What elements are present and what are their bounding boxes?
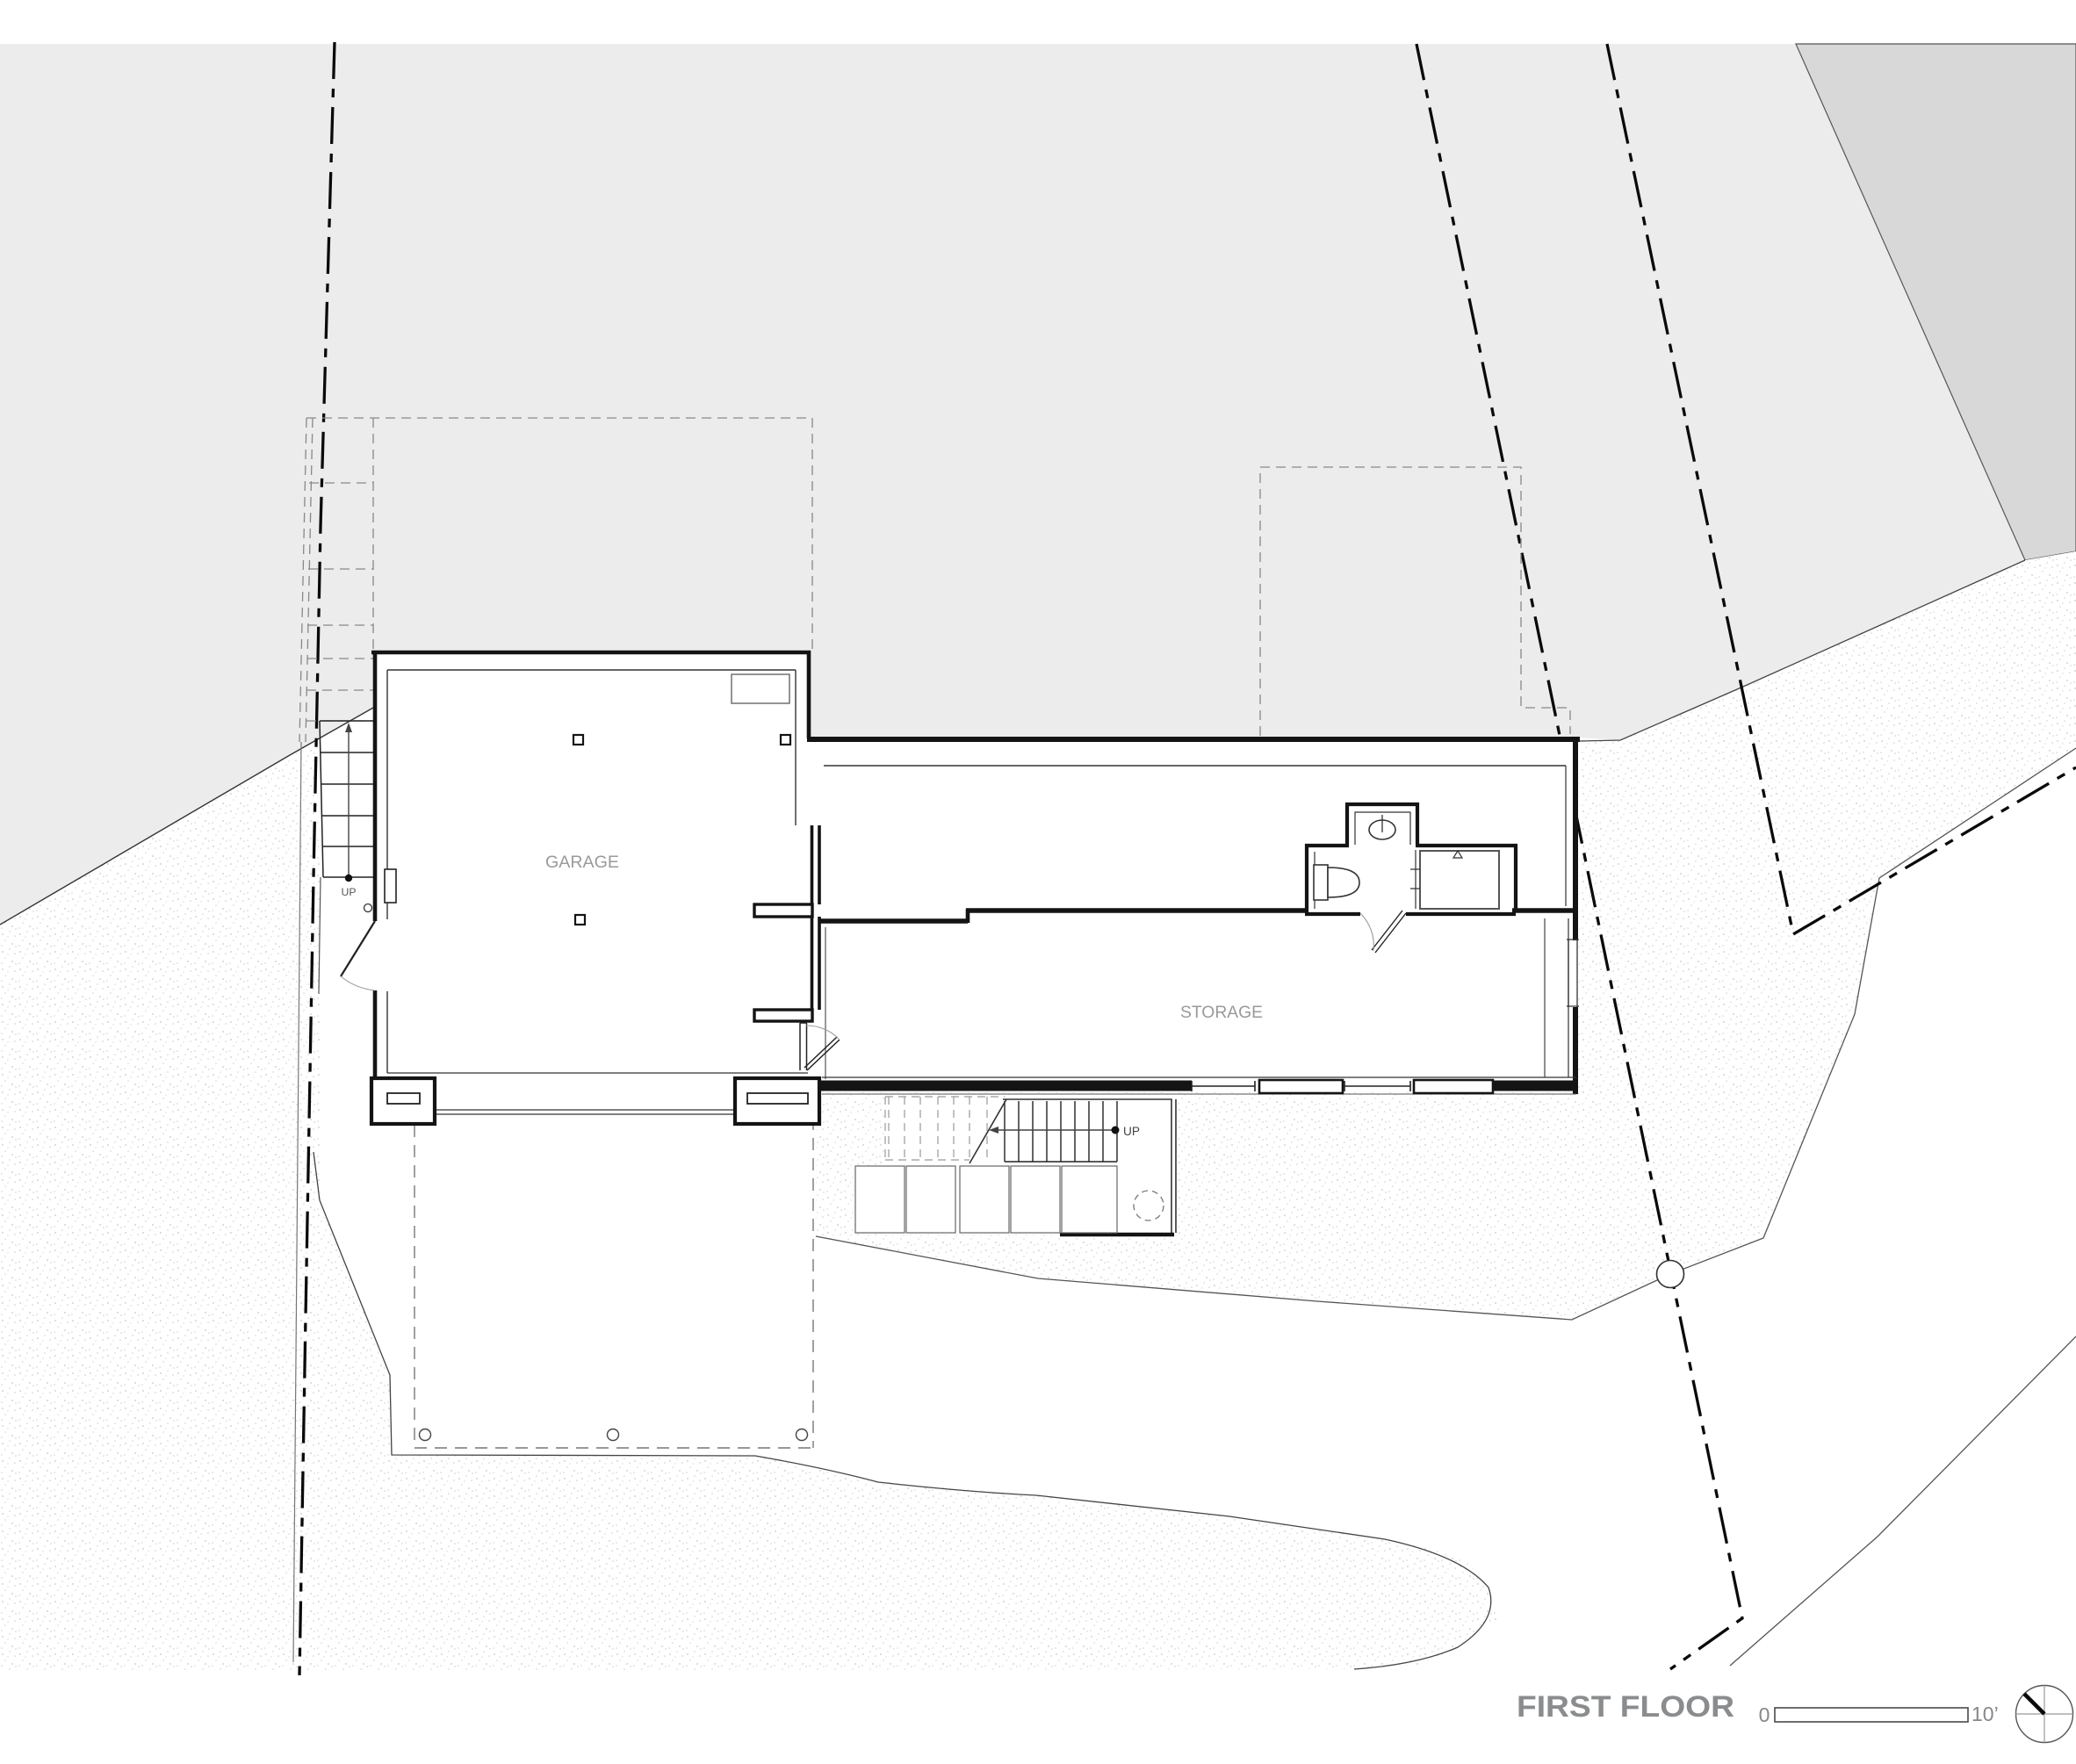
svg-text:STORAGE: STORAGE — [1180, 1004, 1263, 1022]
svg-text:10’: 10’ — [1971, 1703, 1999, 1725]
svg-text:FIRST FLOOR: FIRST FLOOR — [1517, 1690, 1734, 1724]
svg-text:0: 0 — [1759, 1703, 1770, 1726]
svg-text:UP: UP — [342, 886, 357, 898]
svg-text:GARAGE: GARAGE — [545, 853, 619, 872]
svg-text:UP: UP — [1123, 1124, 1140, 1138]
